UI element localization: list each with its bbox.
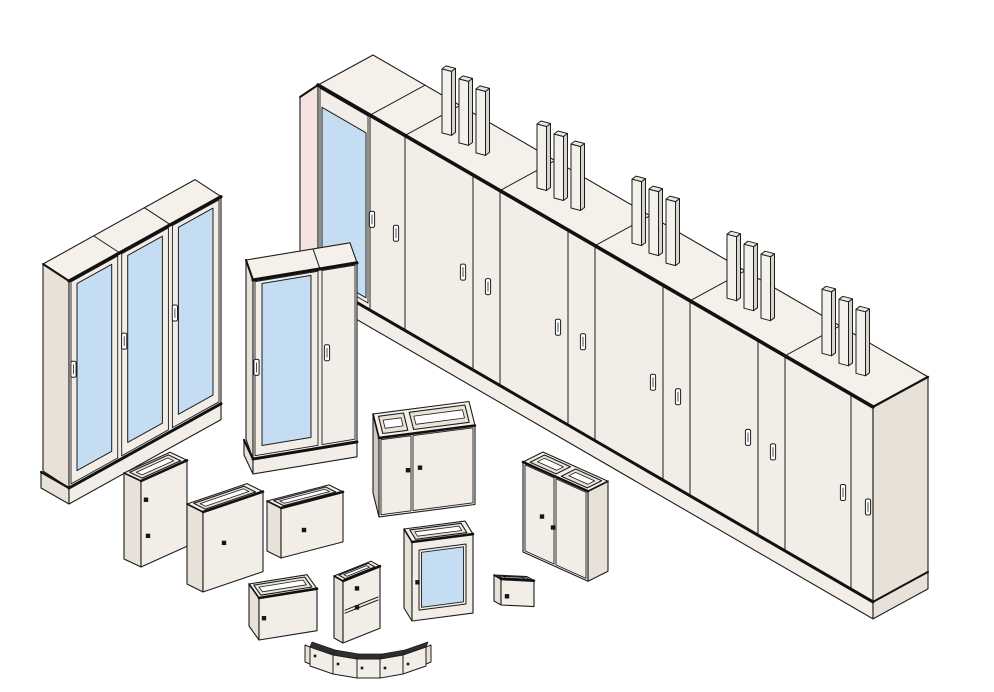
double-door-wall-box-angled [523,452,608,581]
wall-box-mini [494,575,534,607]
side-face [246,260,253,459]
busbar-pillar [856,309,866,376]
door-latch [540,514,544,518]
double-door-wall-box [373,402,475,518]
busbar-pillar [839,299,849,366]
enclosure-illustration [0,0,994,692]
glass-door-pane [77,264,112,470]
door-latch [361,667,364,670]
cabinet-row [300,55,928,619]
busbar-pillar [822,289,832,356]
side-face [404,529,412,621]
door-latch [415,580,419,584]
door-latch [418,465,422,469]
busbar-pillar [442,69,452,135]
busbar-pillar [666,199,676,266]
end-face [873,377,928,602]
door-latch [302,528,306,532]
busbar-pillar [476,89,486,155]
side-face [43,264,69,488]
wall-box-wide [249,575,317,640]
wall-box-small [267,485,343,558]
busbar-pillar [649,189,659,256]
wall-box-medium [187,484,263,592]
side-face [187,504,203,592]
door-latch [262,616,266,620]
door-latch [384,667,387,670]
cover-segment [380,655,403,678]
door-latch [146,534,150,538]
side-face [334,576,343,643]
front-face [501,579,534,607]
door-latch [314,655,317,658]
busbar-pillar [761,254,771,321]
door-latch [355,605,359,609]
door-latch [222,541,226,545]
cover-segment [357,659,380,678]
side-face [267,501,281,558]
illustration-canvas [0,0,994,692]
glass-door-pane [128,236,163,442]
curved-cover-segments [305,642,431,678]
busbar-pillar [727,234,737,301]
door-latch [406,468,410,472]
triple-glass-door-cabinet [41,180,221,504]
glass-window-pane [422,547,464,608]
door-latch [337,663,340,666]
wall-box-tall [124,452,187,567]
busbar-pillar [632,179,642,246]
side-face [588,481,608,581]
front-face [379,426,475,518]
door-latch [505,594,509,598]
cover-segment [333,655,357,678]
side-face [124,473,141,567]
glass-door-pane [178,208,213,414]
wall-box-two-tier [334,561,380,643]
busbar-pillar [744,244,754,311]
busbar-pillar [554,134,564,201]
door-latch [144,498,148,502]
glass-door-pane [262,275,311,445]
busbar-pillar [537,124,547,191]
door-latch [355,586,359,590]
busbar-pillar [459,79,469,145]
glazed-wall-box [404,521,473,621]
segment-top-band [357,654,382,659]
door-latch [551,525,555,529]
double-bay-glass-door-cabinet [244,243,357,474]
door-latch [407,663,410,666]
busbar-pillar [571,144,581,211]
